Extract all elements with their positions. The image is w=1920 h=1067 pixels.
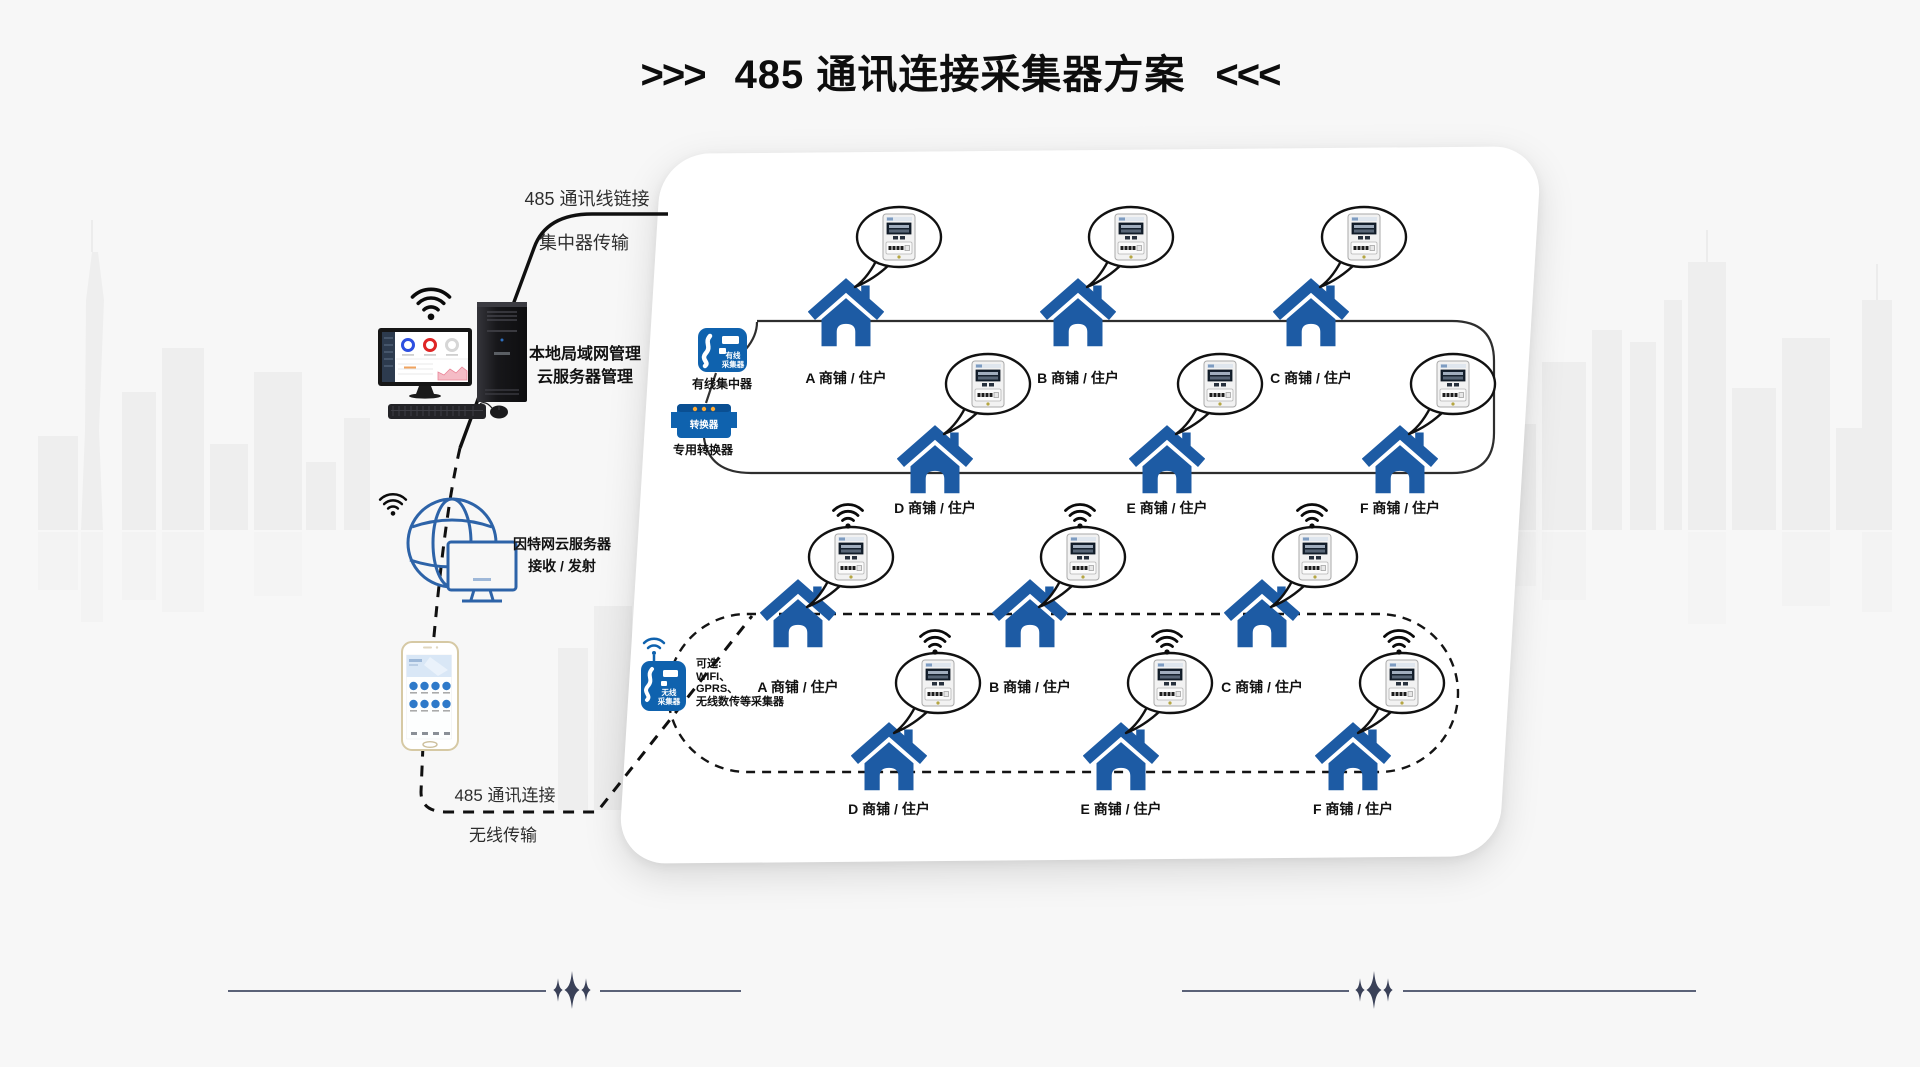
wifi-icon bbox=[1153, 630, 1182, 654]
wireless-collector-icon-text-2: 采集器 bbox=[657, 696, 681, 706]
converter-icon: 转换器 bbox=[671, 404, 737, 438]
house-icon bbox=[1318, 729, 1387, 790]
wifi-icon bbox=[921, 630, 950, 654]
house-icon bbox=[811, 285, 880, 346]
meter-callout bbox=[1087, 207, 1173, 287]
smartphone bbox=[402, 642, 458, 750]
wifi-icon bbox=[1385, 630, 1414, 654]
wired-collector-icon: 有线 采集器 bbox=[698, 328, 747, 372]
house-icon bbox=[900, 432, 969, 493]
meter-callout bbox=[1409, 354, 1495, 434]
wifi-icon bbox=[834, 504, 863, 528]
house-icon bbox=[1132, 432, 1201, 493]
wireless-collector-icon-text-1: 无线 bbox=[661, 687, 677, 697]
house-icon bbox=[1276, 285, 1345, 346]
house-icon bbox=[1365, 432, 1434, 493]
meter-bubble bbox=[944, 354, 1030, 434]
wifi-icon bbox=[1298, 504, 1327, 528]
house-icon bbox=[1043, 285, 1112, 346]
meter-bubble bbox=[1409, 354, 1495, 434]
meter-callout bbox=[1320, 207, 1406, 287]
meter-callout bbox=[1126, 630, 1212, 733]
meter-bubble bbox=[1039, 527, 1125, 607]
cloud-monitor-icon bbox=[448, 542, 516, 601]
meter-bubble bbox=[855, 207, 941, 287]
keyboard bbox=[388, 404, 486, 419]
house-icon bbox=[854, 729, 923, 790]
desktop-computer bbox=[378, 289, 527, 419]
meter-callout bbox=[855, 207, 941, 287]
wifi-icon bbox=[412, 289, 449, 320]
meter-callout bbox=[894, 630, 980, 733]
meter-bubble bbox=[1087, 207, 1173, 287]
meter-callout bbox=[1176, 354, 1262, 434]
wired-collector-icon-text-2: 采集器 bbox=[721, 359, 745, 369]
houses-layer bbox=[763, 207, 1495, 790]
antenna-icon bbox=[644, 639, 664, 663]
computer-tower bbox=[477, 302, 527, 402]
meter-callout bbox=[1358, 630, 1444, 733]
diagram-graphics: 有线 采集器 转换器 无线 采集器 bbox=[0, 0, 1920, 1067]
meter-bubble bbox=[1320, 207, 1406, 287]
concentrator-stub-line bbox=[746, 322, 757, 349]
wired-collector-icon-text-1: 有线 bbox=[726, 350, 741, 360]
wifi-icon bbox=[380, 494, 406, 515]
meter-bubble bbox=[1358, 653, 1444, 733]
meter-bubble bbox=[1176, 354, 1262, 434]
house-icon bbox=[1086, 729, 1155, 790]
wireless-collector-icon: 无线 采集器 bbox=[641, 639, 686, 711]
wifi-icon bbox=[1066, 504, 1095, 528]
meter-bubble bbox=[807, 527, 893, 607]
footer-ornaments bbox=[228, 971, 1696, 1009]
converter-icon-text: 转换器 bbox=[690, 419, 719, 431]
diagram-canvas: 有线 采集器 转换器 无线 采集器 bbox=[0, 0, 1920, 1067]
meter-bubble bbox=[1126, 653, 1212, 733]
meter-bubble bbox=[1271, 527, 1357, 607]
meter-bubble bbox=[894, 653, 980, 733]
meter-callout bbox=[944, 354, 1030, 434]
monitor bbox=[378, 328, 472, 399]
concentrator-converter-link bbox=[706, 373, 716, 403]
